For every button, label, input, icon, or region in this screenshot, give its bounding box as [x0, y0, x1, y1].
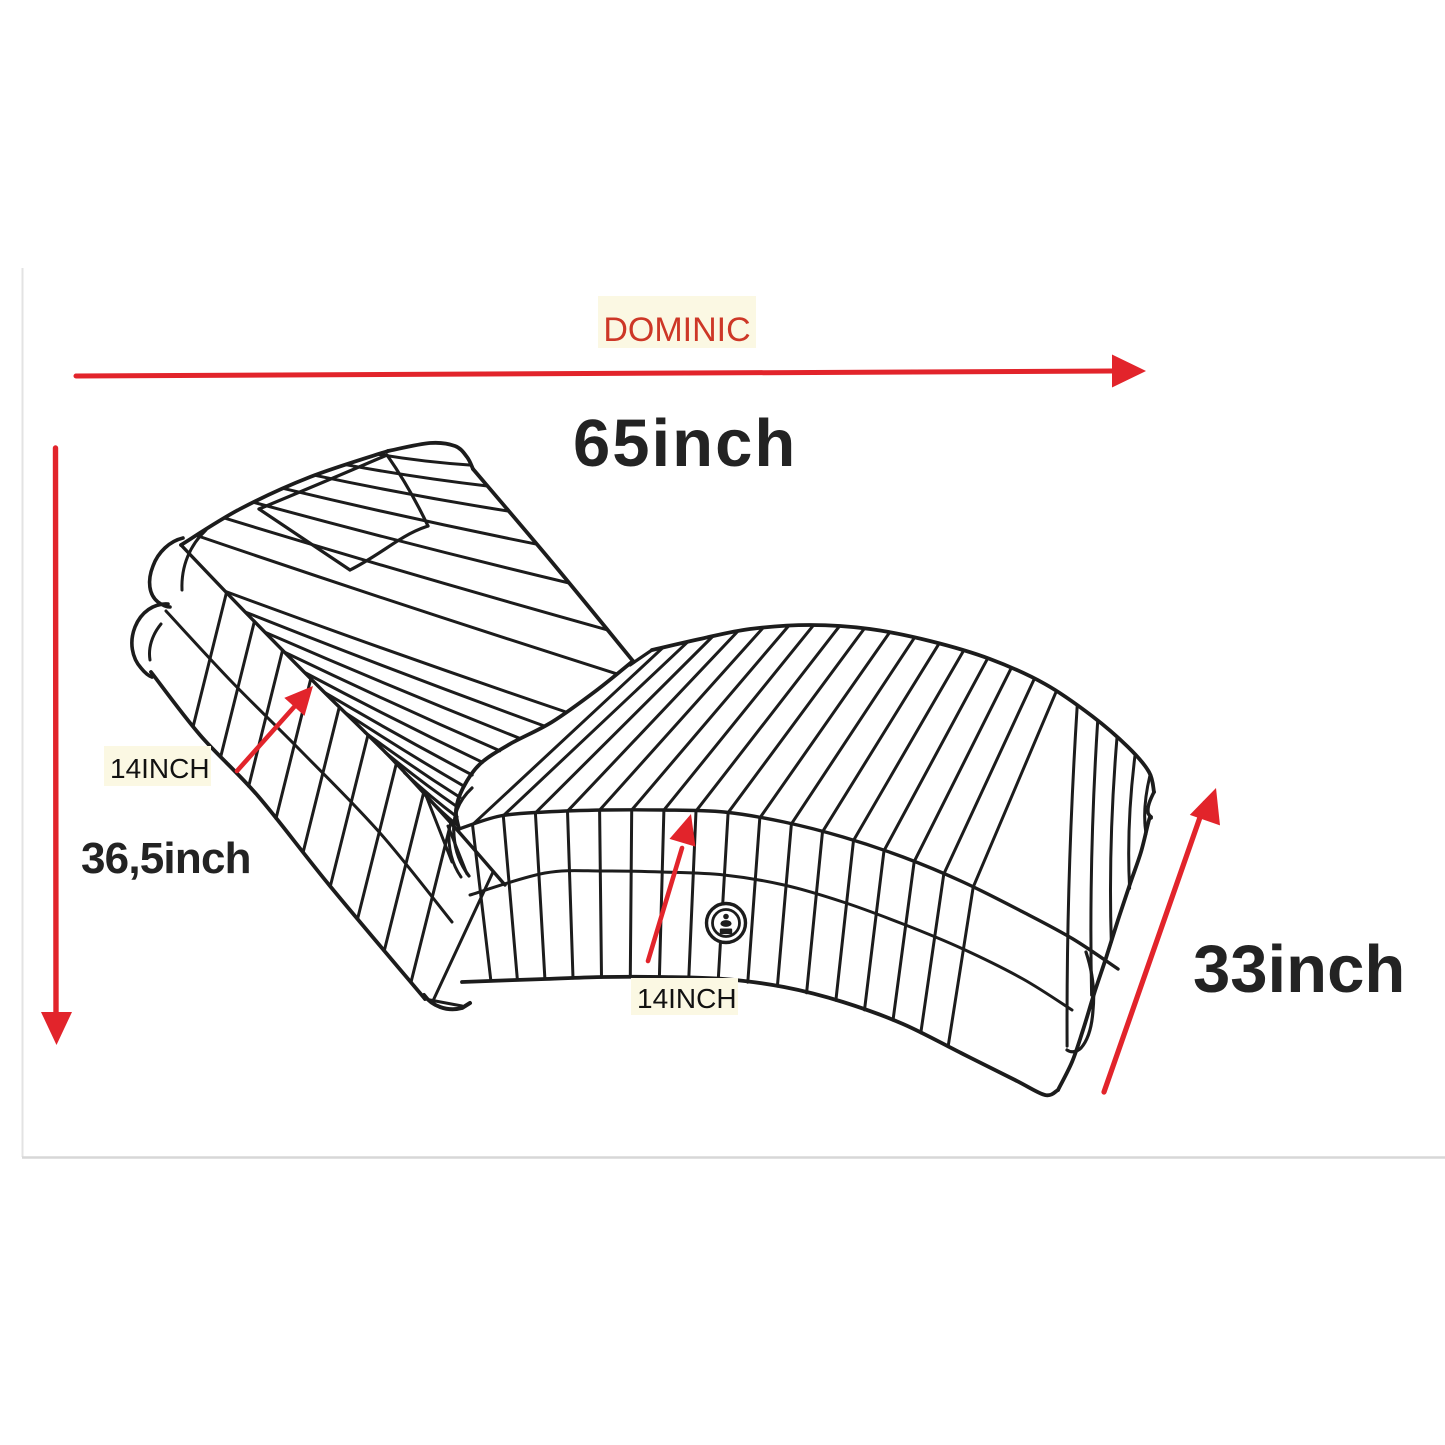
svg-text:14INCH: 14INCH	[637, 983, 737, 1014]
svg-text:14INCH: 14INCH	[110, 753, 210, 784]
svg-text:36,5inch: 36,5inch	[81, 834, 251, 883]
svg-text:65inch: 65inch	[573, 406, 797, 481]
svg-text:33inch: 33inch	[1193, 932, 1405, 1007]
svg-text:DOMINIC: DOMINIC	[603, 311, 750, 349]
